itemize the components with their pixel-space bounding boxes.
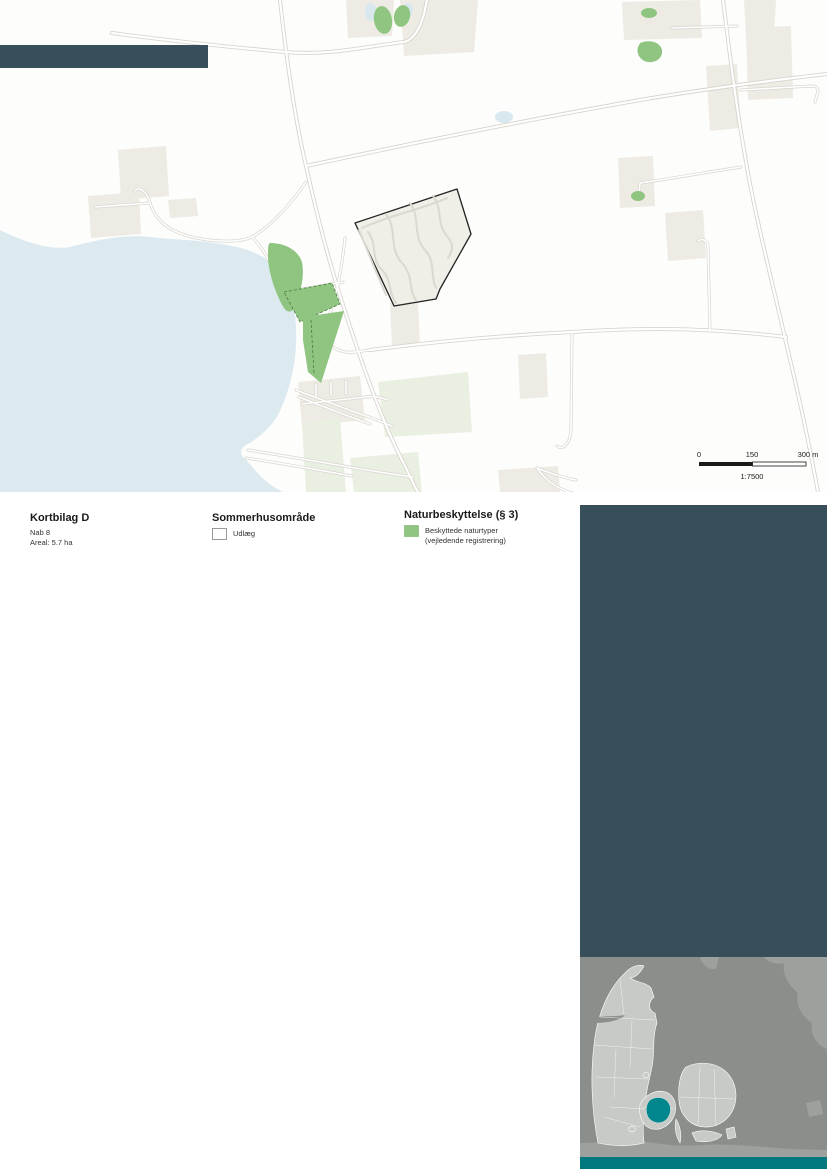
legend-sommerhusomraade: Sommerhusområde Udlæg <box>212 512 392 540</box>
natur-title: Naturbeskyttelse (§ 3) <box>404 509 579 521</box>
legend-kortbilag: Kortbilag D Nab 8 Areal: 5.7 ha <box>30 512 200 548</box>
kortbilag-title: Kortbilag D <box>30 512 200 524</box>
zealand <box>679 1063 736 1127</box>
samsoe <box>643 1073 649 1078</box>
main-map: 0 150 300 m 1:7500 <box>0 0 827 492</box>
udlaeg-swatch-icon <box>212 528 227 540</box>
kortbilag-name: Nab 8 <box>30 528 200 538</box>
kortbilag-area: Areal: 5.7 ha <box>30 538 200 548</box>
naturtype-label: Beskyttede naturtyper (vejledende regist… <box>425 525 506 545</box>
sommerhus-title: Sommerhusområde <box>212 512 392 524</box>
footer-accent-bar <box>580 1157 827 1169</box>
legend-naturbeskyttelse: Naturbeskyttelse (§ 3) Beskyttede naturt… <box>404 509 579 545</box>
denmark-overview-inset <box>580 957 827 1157</box>
scale-label-300: 300 m <box>798 450 819 459</box>
falster <box>726 1127 736 1139</box>
naturtype-swatch-icon <box>404 525 419 537</box>
map-title-block <box>0 45 208 68</box>
scale-label-150: 150 <box>746 450 759 459</box>
scale-label-0: 0 <box>697 450 701 459</box>
highlighted-municipality <box>646 1098 670 1123</box>
als <box>629 1126 636 1131</box>
scale-ratio: 1:7500 <box>741 472 764 481</box>
udlaeg-label: Udlæg <box>233 528 255 539</box>
side-color-panel <box>580 505 827 957</box>
